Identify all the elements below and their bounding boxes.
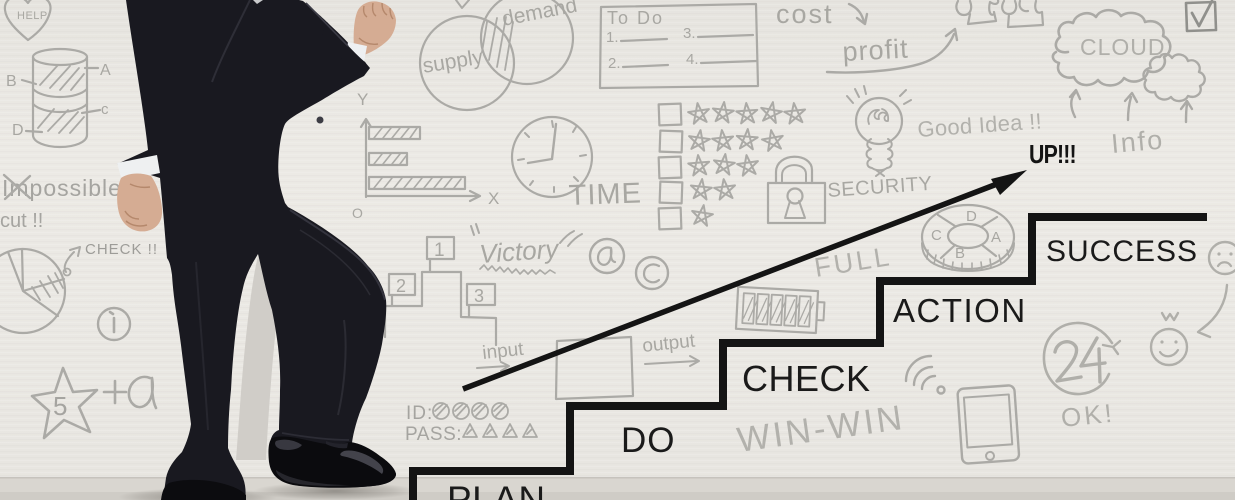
- svg-text:cut !!: cut !!: [0, 210, 43, 232]
- svg-text:A: A: [991, 229, 1001, 246]
- svg-text:TIME: TIME: [568, 177, 642, 212]
- svg-text:Victory: Victory: [478, 233, 561, 269]
- svg-text:ID:: ID:: [406, 403, 433, 424]
- svg-text:CHECK: CHECK: [742, 358, 871, 399]
- svg-text:2: 2: [396, 276, 406, 296]
- svg-text:input: input: [481, 339, 525, 364]
- svg-text:c: c: [101, 101, 109, 118]
- svg-text:2.: 2.: [608, 55, 621, 72]
- svg-text:UP!!!: UP!!!: [1029, 140, 1076, 170]
- svg-text:4.: 4.: [686, 51, 699, 68]
- svg-text:PASS:: PASS:: [405, 424, 462, 445]
- svg-text:3: 3: [474, 286, 484, 306]
- svg-text:DO: DO: [621, 421, 676, 460]
- svg-text:OK!: OK!: [1059, 398, 1116, 433]
- svg-text:5: 5: [53, 391, 67, 421]
- svg-text:Info: Info: [1110, 124, 1165, 159]
- svg-text:X: X: [488, 189, 499, 208]
- svg-text:B: B: [955, 245, 965, 262]
- svg-text:D: D: [966, 208, 977, 225]
- svg-text:O: O: [352, 205, 363, 221]
- svg-text:D: D: [12, 122, 24, 139]
- svg-text:SUCCESS: SUCCESS: [1046, 235, 1198, 268]
- svg-text:ACTION: ACTION: [893, 292, 1027, 329]
- svg-text:B: B: [6, 73, 17, 90]
- svg-text:1.: 1.: [606, 29, 619, 46]
- svg-text:CLOUD: CLOUD: [1080, 34, 1166, 60]
- svg-text:To Do: To Do: [607, 8, 664, 28]
- svg-text:3.: 3.: [683, 25, 696, 42]
- svg-text:A: A: [100, 62, 111, 79]
- svg-text:HELP: HELP: [17, 10, 48, 22]
- svg-text:C: C: [931, 227, 942, 244]
- svg-text:cost: cost: [776, 0, 834, 29]
- svg-text:Y: Y: [357, 90, 368, 109]
- svg-text:CHECK !!: CHECK !!: [85, 241, 158, 258]
- svg-text:PLAN: PLAN: [447, 479, 546, 500]
- svg-text:1: 1: [434, 240, 445, 261]
- svg-text:profit: profit: [842, 34, 910, 67]
